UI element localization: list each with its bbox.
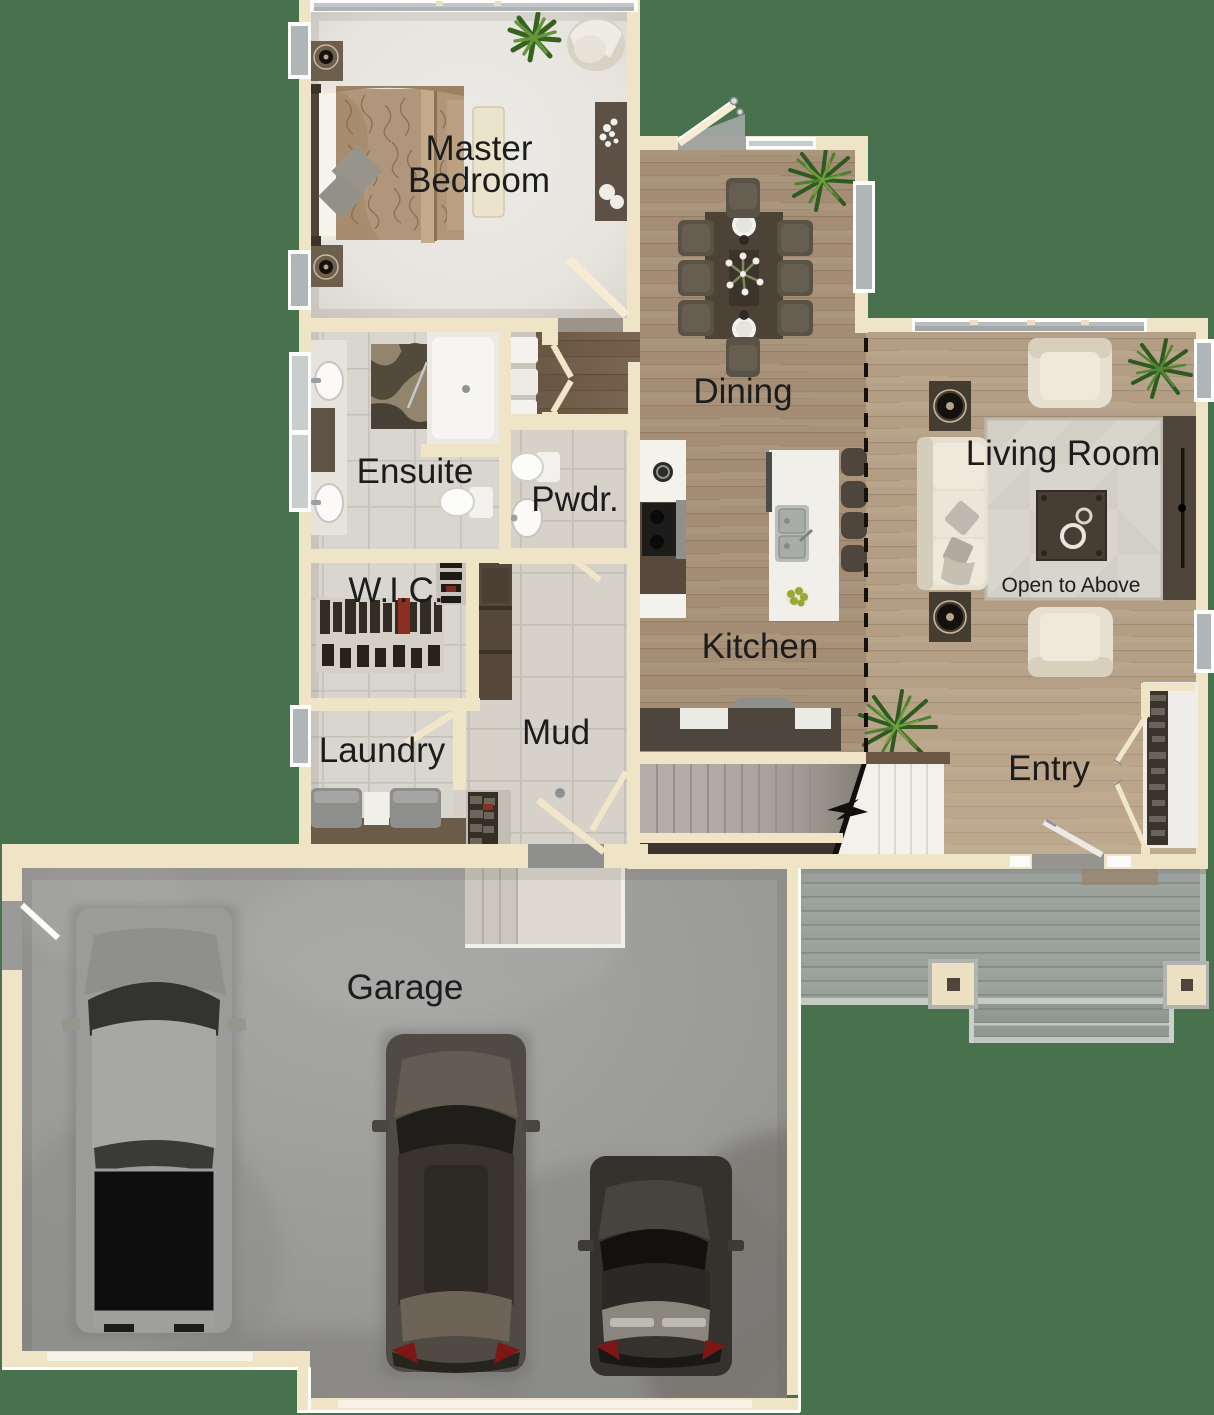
svg-text:Bedroom: Bedroom [408,161,550,200]
svg-text:Living Room: Living Room [966,434,1161,473]
svg-text:Mud: Mud [522,713,590,752]
svg-text:W.I.C.: W.I.C. [348,571,443,610]
svg-text:Kitchen: Kitchen [702,627,819,666]
svg-text:Open to Above: Open to Above [1002,574,1141,597]
svg-text:Laundry: Laundry [319,731,446,770]
svg-text:Ensuite: Ensuite [357,452,474,491]
svg-text:Entry: Entry [1008,749,1090,788]
svg-text:Dining: Dining [693,372,792,411]
svg-text:Garage: Garage [347,968,464,1007]
svg-text:Pwdr.: Pwdr. [531,480,619,519]
